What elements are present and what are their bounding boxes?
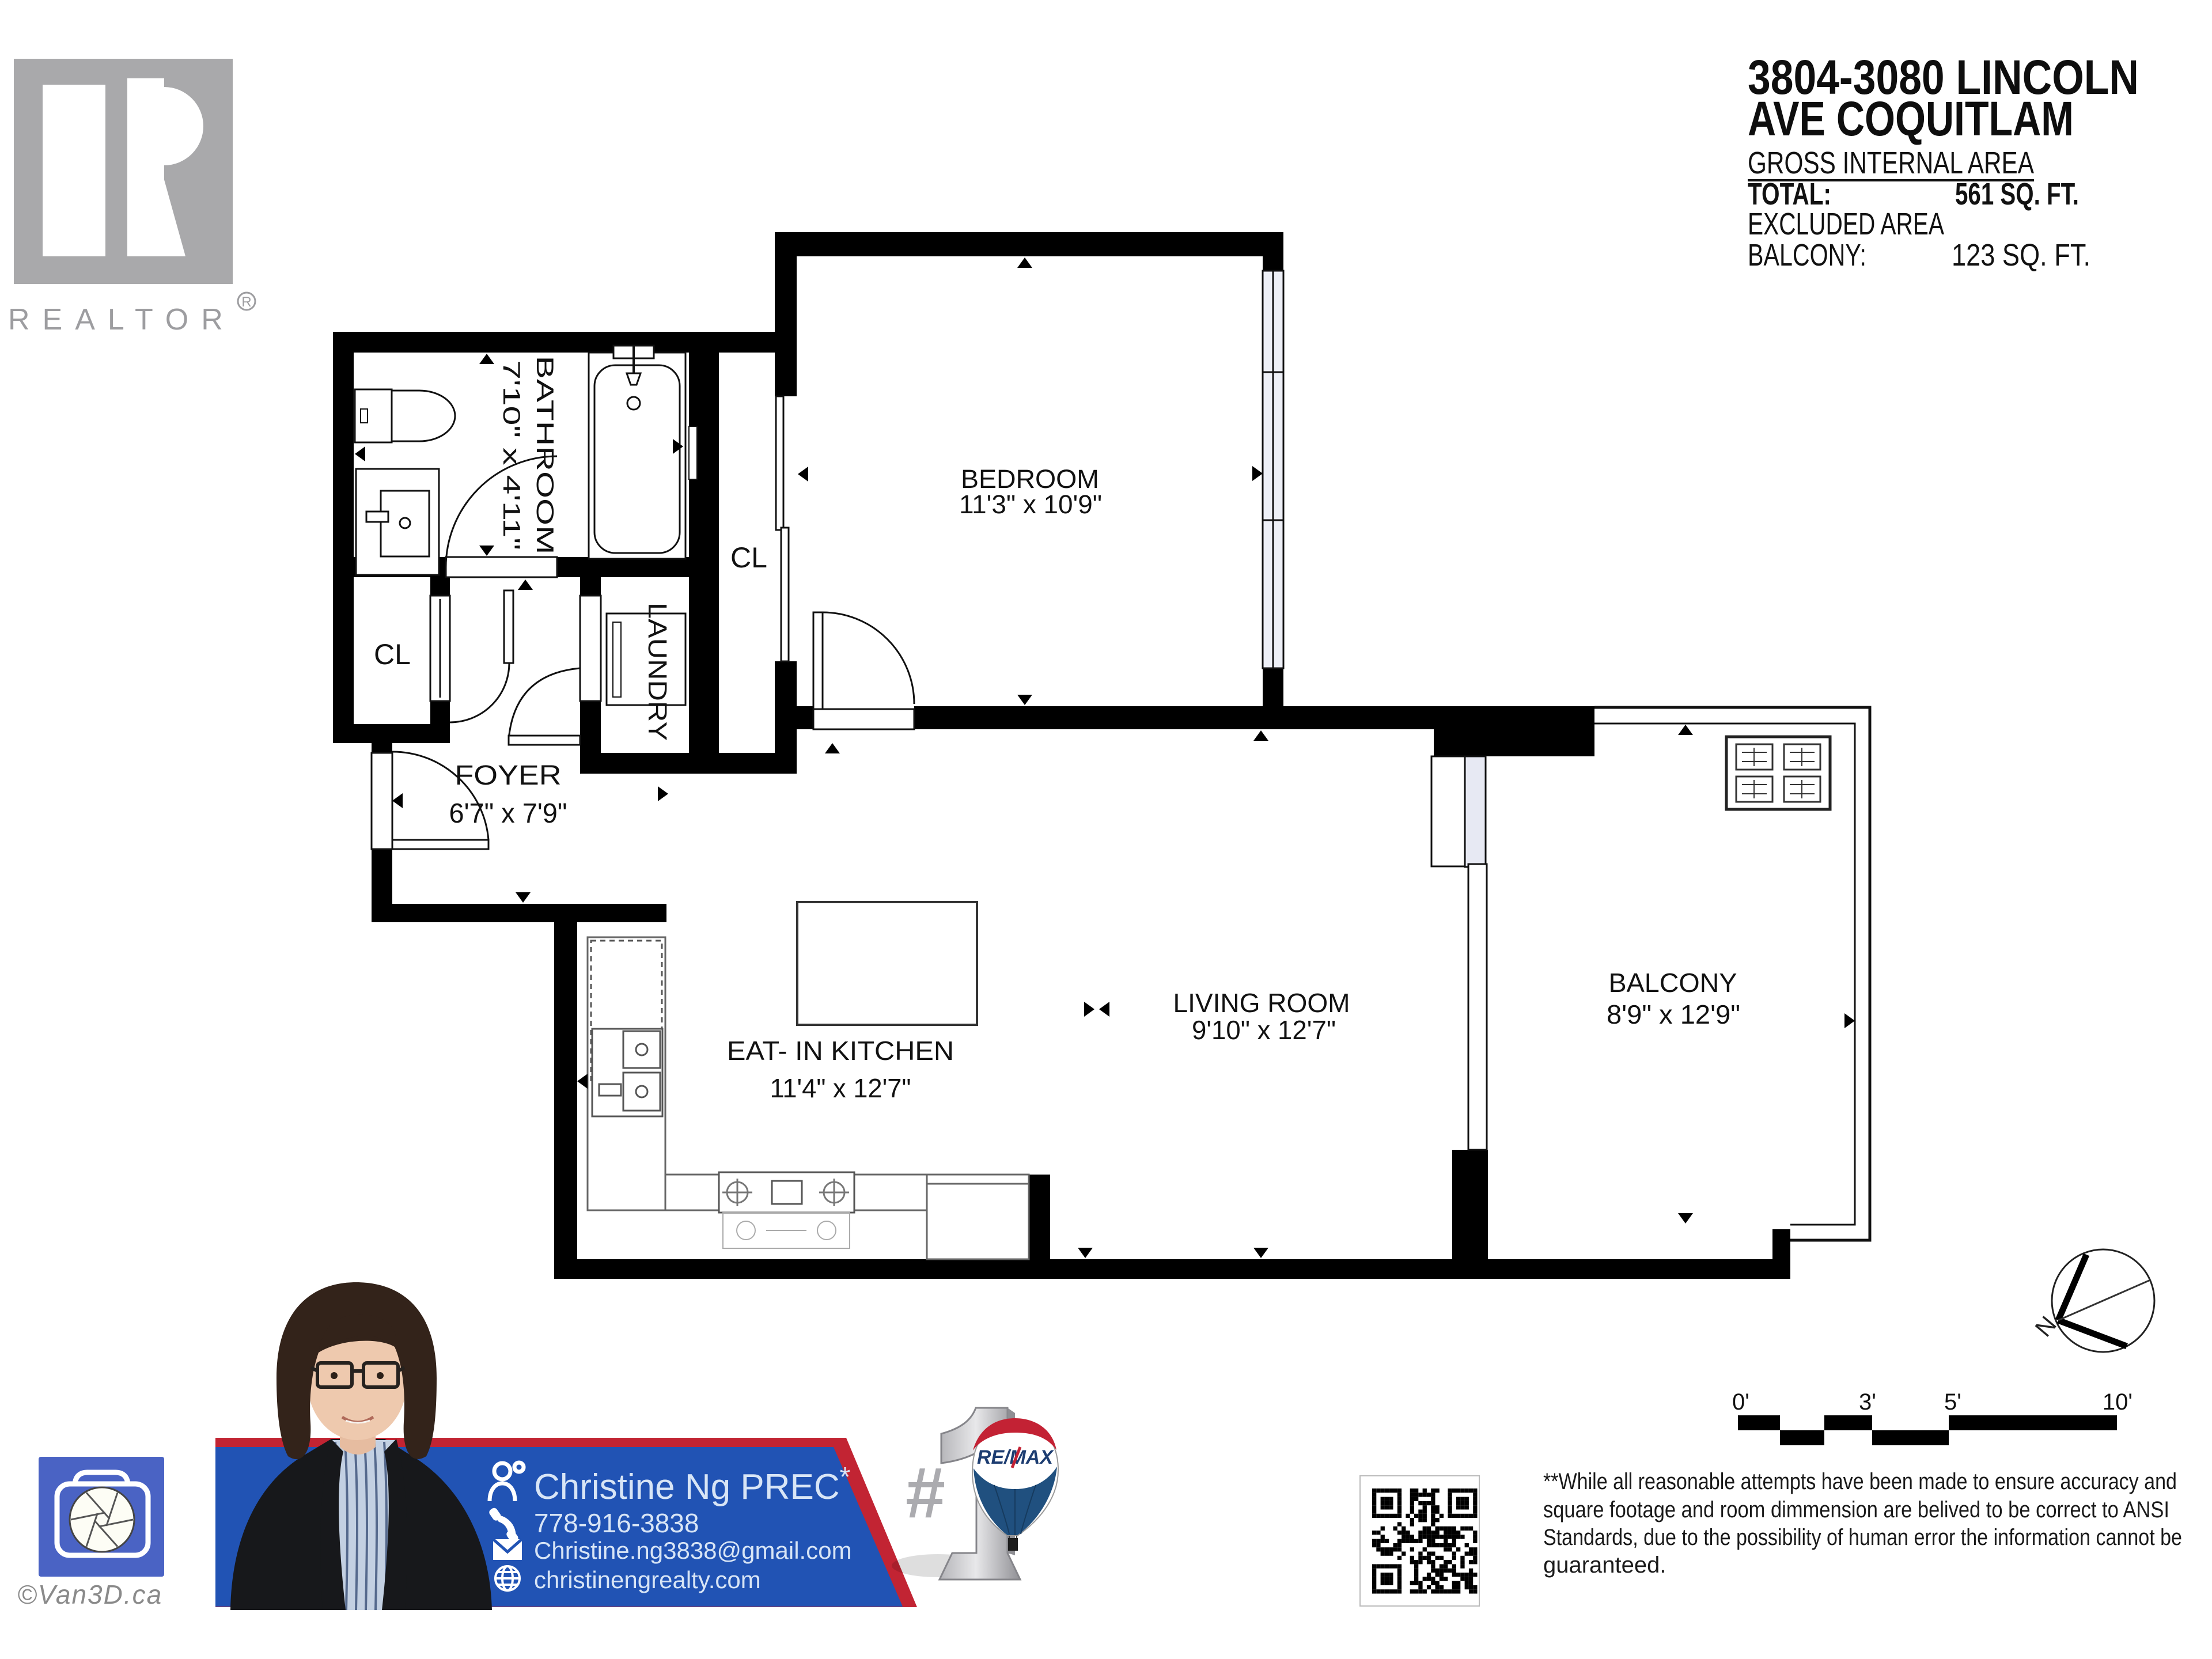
svg-text:10': 10' <box>2103 1389 2133 1415</box>
svg-text:0': 0' <box>1732 1389 1749 1415</box>
svg-text:**While all reasonable attempt: **While all reasonable attempts have bee… <box>1543 1469 2177 1494</box>
svg-text:LIVING ROOM: LIVING ROOM <box>1173 988 1350 1018</box>
svg-text:REALTOR: REALTOR <box>8 303 236 336</box>
svg-text:©Van3D.ca: ©Van3D.ca <box>17 1580 162 1609</box>
svg-text:christinengrealty.com: christinengrealty.com <box>534 1566 761 1593</box>
svg-text:778-916-3838: 778-916-3838 <box>534 1508 699 1538</box>
svg-text:guaranteed.: guaranteed. <box>1543 1552 1666 1578</box>
svg-text:R: R <box>241 294 251 310</box>
svg-text:Christine Ng PREC*: Christine Ng PREC* <box>534 1462 850 1507</box>
svg-text:3': 3' <box>1859 1389 1876 1415</box>
svg-text:Christine.ng3838@gmail.com: Christine.ng3838@gmail.com <box>534 1537 852 1564</box>
svg-text:11'4" x 12'7": 11'4" x 12'7" <box>770 1073 911 1103</box>
svg-text:CL: CL <box>730 541 767 574</box>
svg-text:561 SQ. FT.: 561 SQ. FT. <box>1955 177 2079 211</box>
svg-text:#: # <box>906 1453 945 1533</box>
svg-text:EAT- IN KITCHEN: EAT- IN KITCHEN <box>727 1036 954 1066</box>
svg-text:9'10" x 12'7": 9'10" x 12'7" <box>1192 1015 1336 1045</box>
svg-text:BALCONY:: BALCONY: <box>1748 238 1866 272</box>
svg-text:FOYER: FOYER <box>455 760 562 791</box>
svg-text:AVE COQUITLAM: AVE COQUITLAM <box>1748 92 2074 146</box>
svg-text:EXCLUDED AREA: EXCLUDED AREA <box>1748 207 1944 241</box>
svg-text:BATHROOM: BATHROOM <box>532 356 559 555</box>
svg-text:TOTAL:: TOTAL: <box>1748 177 1831 211</box>
svg-text:11'3" x 10'9": 11'3" x 10'9" <box>959 490 1102 519</box>
svg-text:6'7" x 7'9": 6'7" x 7'9" <box>449 798 567 829</box>
svg-text:CL: CL <box>374 638 411 671</box>
svg-text:123 SQ. FT.: 123 SQ. FT. <box>1952 238 2090 272</box>
svg-text:Standards, due to the possibil: Standards, due to the possibility of hum… <box>1543 1525 2182 1550</box>
svg-text:8'9" x 12'9": 8'9" x 12'9" <box>1607 999 1740 1029</box>
svg-text:square footage and room dimmen: square footage and room dimmension are b… <box>1543 1497 2169 1522</box>
svg-text:7'10" x 4'11": 7'10" x 4'11" <box>498 360 525 550</box>
svg-text:LAUNDRY: LAUNDRY <box>643 603 672 741</box>
svg-text:GROSS INTERNAL AREA: GROSS INTERNAL AREA <box>1748 146 2034 180</box>
svg-text:BALCONY: BALCONY <box>1609 968 1737 998</box>
svg-text:5': 5' <box>1944 1389 1961 1415</box>
